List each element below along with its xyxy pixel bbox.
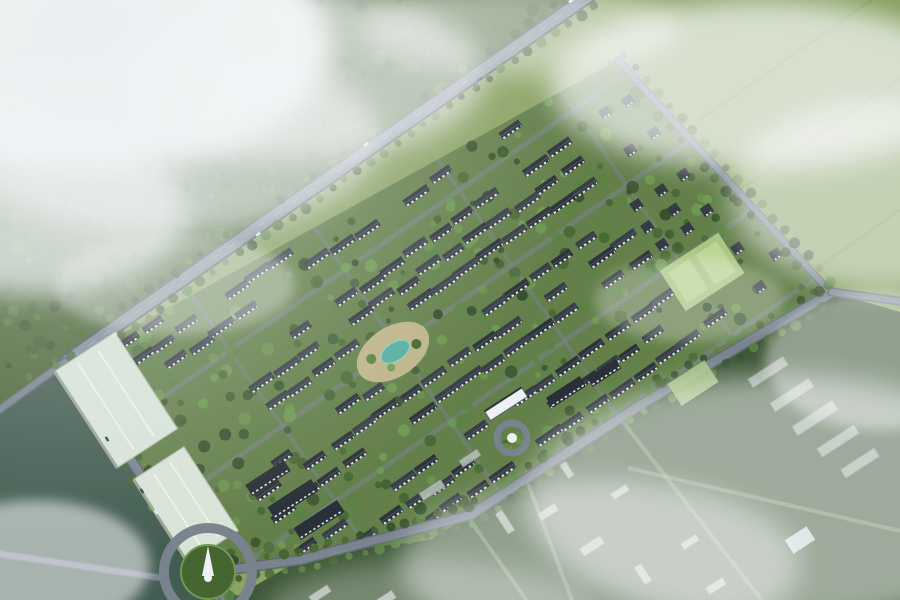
clouds-layer: [0, 0, 900, 600]
aerial-masterplan-rendering: [0, 0, 900, 600]
scene-canvas: [0, 0, 900, 600]
